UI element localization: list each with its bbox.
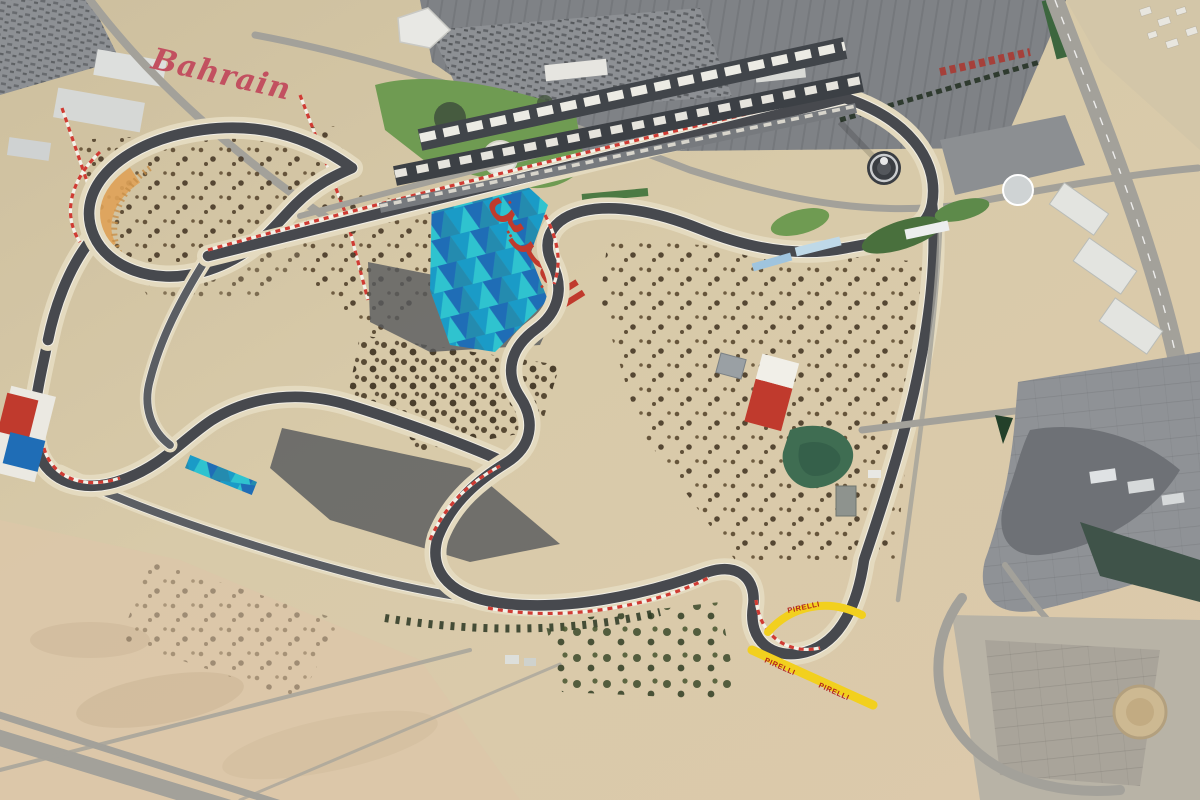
service-van [868, 470, 881, 478]
small-building [524, 658, 536, 666]
round-building-core [1126, 698, 1154, 726]
aerial-photo-frame: Bahrain البحرين [0, 0, 1200, 800]
aerial-photo-bahrain-circuit: Bahrain البحرين [0, 0, 1200, 800]
service-truck [836, 486, 856, 516]
small-building [505, 655, 519, 664]
tower-cap [880, 157, 888, 165]
helipad [1003, 175, 1033, 205]
